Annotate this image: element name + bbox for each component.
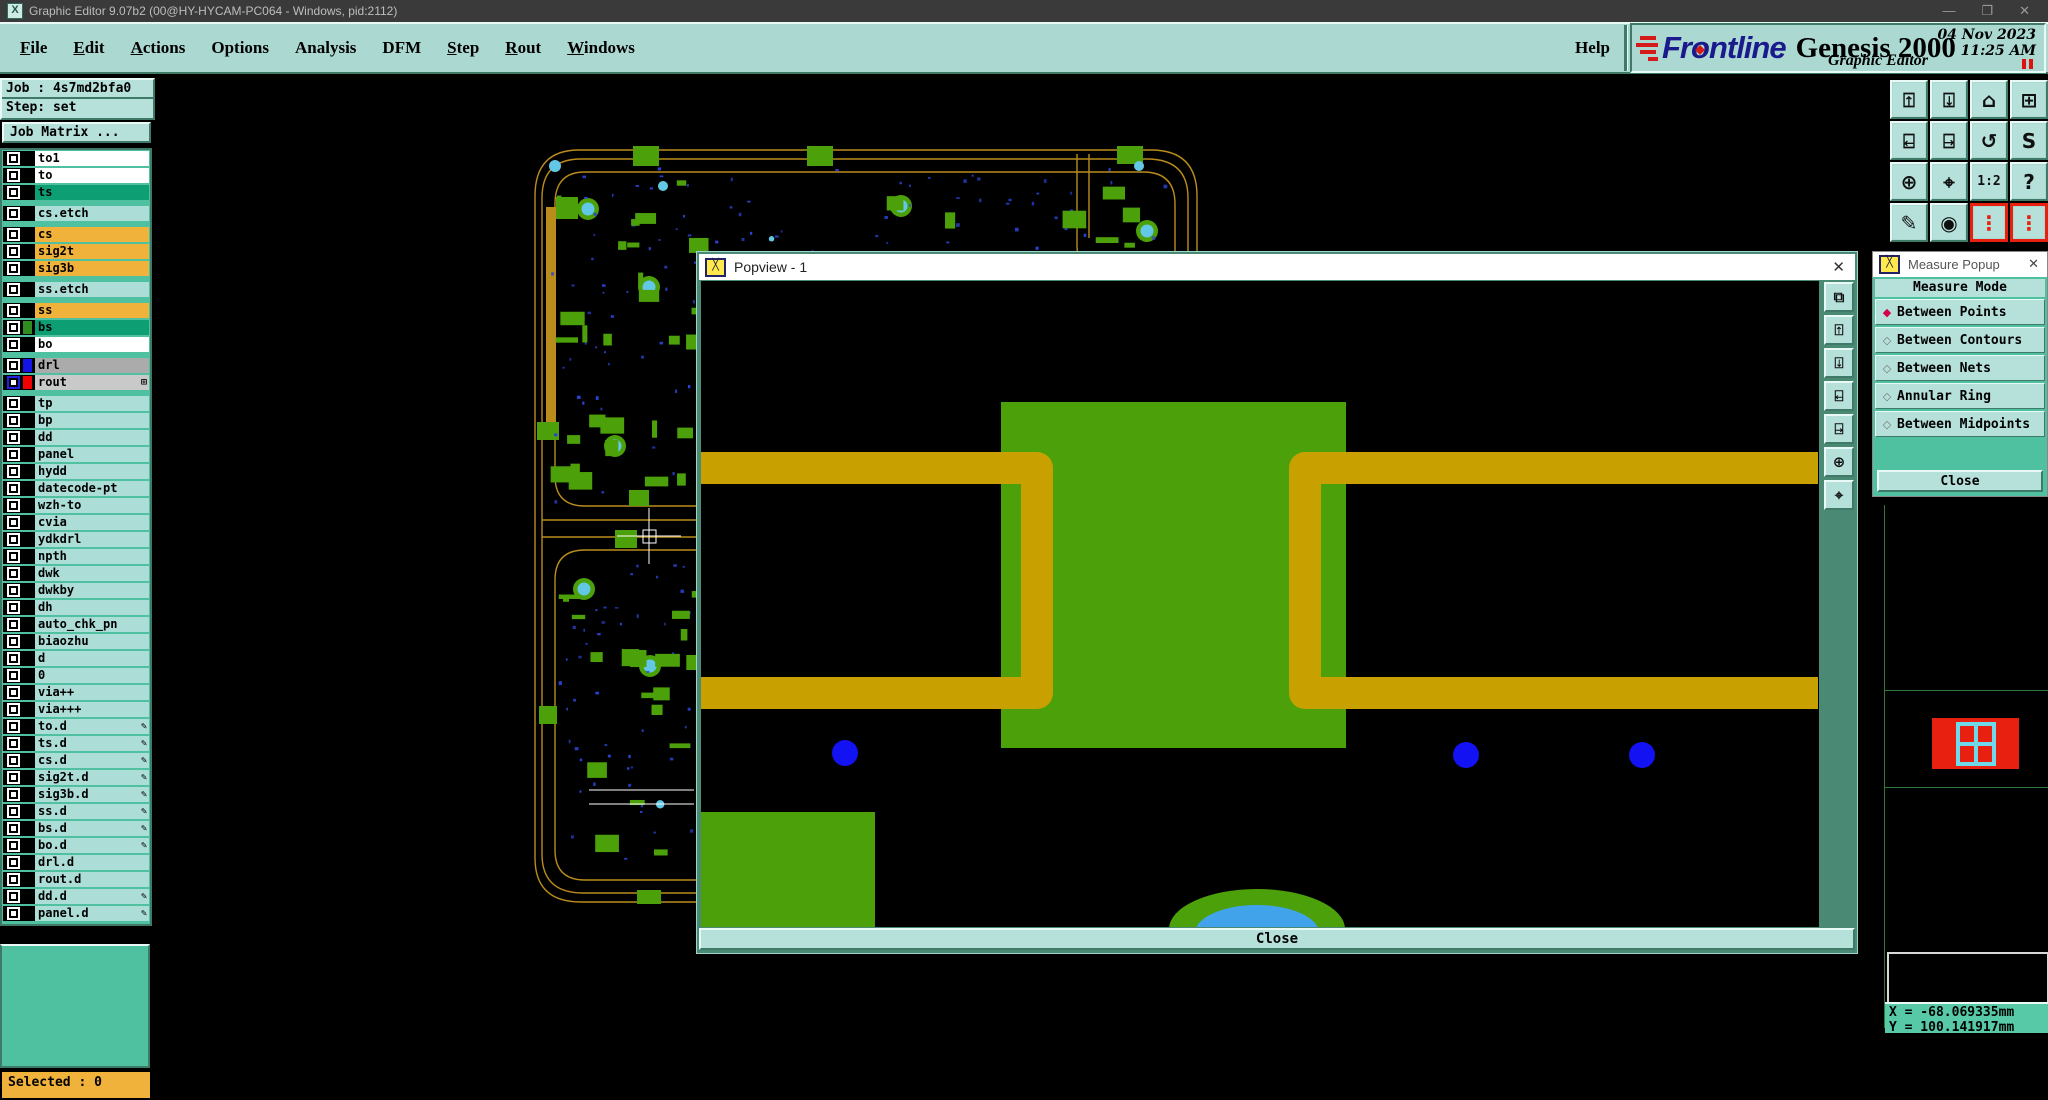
layer-color-swatch	[23, 805, 32, 818]
logo-speedline	[1636, 43, 1658, 47]
menu-dfm[interactable]: DFM	[382, 38, 421, 58]
measure-option-between-points[interactable]: ◆Between Points	[1875, 299, 2045, 325]
popview-graphic	[701, 281, 1819, 927]
layer-row-to1[interactable]: to1	[3, 151, 149, 166]
layer-row-drl[interactable]: drl	[3, 358, 149, 373]
layer-checkbox[interactable]	[7, 283, 20, 296]
layer-name[interactable]: drl	[35, 358, 149, 373]
d-layer-pen-icon: ✎	[141, 719, 147, 734]
layer-row-dwkby[interactable]: dwkby	[3, 583, 149, 598]
d-layer-pen-icon: ✎	[141, 787, 147, 802]
layer-name[interactable]: panel	[35, 447, 149, 462]
layer-name-text: cs.etch	[38, 206, 147, 221]
layer-name[interactable]: via+++	[35, 702, 149, 717]
layer-name[interactable]: dh	[35, 600, 149, 615]
query-button[interactable]: ?	[2010, 162, 2048, 201]
menu-options[interactable]: Options	[211, 38, 269, 58]
layer-name-text: rout	[38, 375, 141, 390]
layer-color-swatch	[23, 788, 32, 801]
layer-checkbox[interactable]	[7, 245, 20, 258]
measure-options: ◆Between Points◇Between Contours◇Between…	[1873, 299, 2047, 437]
measure-option-annular-ring[interactable]: ◇Annular Ring	[1875, 383, 2045, 409]
layer-name[interactable]: ts	[35, 185, 149, 200]
brand-plate: Frontline Genesis 2000 Graphic Editor 04…	[1630, 23, 2046, 73]
d-layer-pen-icon: ✎	[141, 821, 147, 836]
measure-option-between-nets[interactable]: ◇Between Nets	[1875, 355, 2045, 381]
layer-color-swatch	[23, 448, 32, 461]
window-xy-button[interactable]: ⊞	[2010, 80, 2048, 119]
layer-name[interactable]: datecode-pt	[35, 481, 149, 496]
popview-pan-right-button[interactable]: ⍈	[1824, 414, 1854, 444]
menubar: FileEditActionsOptionsAnalysisDFMStepRou…	[0, 22, 2048, 74]
layer-color-swatch	[23, 482, 32, 495]
layer-name-text: ss.etch	[38, 282, 147, 297]
d-layer-pen-icon: ✎	[141, 889, 147, 904]
layer-name[interactable]: ss.etch	[35, 282, 149, 297]
layer-name[interactable]: to.d✎	[35, 719, 149, 734]
layer-checkbox[interactable]	[7, 720, 20, 733]
layer-checkbox[interactable]	[7, 397, 20, 410]
layer-color-swatch	[23, 686, 32, 699]
layer-name-text: auto_chk_pn	[38, 617, 147, 632]
layer-checkbox[interactable]	[7, 431, 20, 444]
layer-name-text: ts	[38, 185, 147, 200]
layer-color-swatch	[23, 720, 32, 733]
layer-checkbox[interactable]	[7, 686, 20, 699]
popview-window-icon	[705, 258, 726, 277]
menu-step[interactable]: Step	[447, 38, 479, 58]
layer-name[interactable]: wzh-to	[35, 498, 149, 513]
job-name: Job : 4s7md2bfa0	[2, 80, 153, 99]
layer-name-text: dd.d	[38, 889, 141, 904]
layer-row-cs.etch[interactable]: cs.etch	[3, 206, 149, 221]
layer-name[interactable]: auto_chk_pn	[35, 617, 149, 632]
layer-checkbox[interactable]	[7, 448, 20, 461]
layer-name-text: ss.d	[38, 804, 141, 819]
layer-name-text: rout.d	[38, 872, 147, 887]
layer-name[interactable]: ss	[35, 303, 149, 318]
layer-name[interactable]: bs.d✎	[35, 821, 149, 836]
popview-clone-button[interactable]: ⧉	[1824, 282, 1854, 312]
layer-row-dd[interactable]: dd	[3, 430, 149, 445]
layer-name[interactable]: cs.d✎	[35, 753, 149, 768]
layer-row-cvia[interactable]: cvia	[3, 515, 149, 530]
thumbnail-grid-icon	[1956, 722, 1996, 766]
layer-color-swatch	[23, 338, 32, 351]
layer-color-swatch	[23, 754, 32, 767]
view-up-button[interactable]: ⍐	[1890, 80, 1928, 119]
layer-name[interactable]: bp	[35, 413, 149, 428]
layer-color-swatch	[23, 304, 32, 317]
layer-checkbox[interactable]	[7, 788, 20, 801]
layer-name[interactable]: via++	[35, 685, 149, 700]
layer-name-text: bo	[38, 337, 147, 352]
layer-name[interactable]: to1	[35, 151, 149, 166]
layer-checkbox[interactable]	[7, 533, 20, 546]
layer-name-text: sig3b	[38, 261, 147, 276]
selected-count: Selected : 0	[0, 1070, 152, 1100]
layer-row-dd.d[interactable]: dd.d✎	[3, 889, 149, 904]
layer-row-wzh-to[interactable]: wzh-to	[3, 498, 149, 513]
product-subtitle: Graphic Editor	[1828, 52, 1928, 70]
menu-edit[interactable]: Edit	[73, 38, 104, 58]
layer-row-via++[interactable]: via++	[3, 685, 149, 700]
step-name: Step: set	[2, 99, 153, 118]
layer-name-text: drl	[38, 358, 147, 373]
layer-name[interactable]: sig2t.d✎	[35, 770, 149, 785]
layer-checkbox[interactable]	[7, 771, 20, 784]
window-title: Graphic Editor 9.07b2 (00@HY-HYCAM-PC064…	[29, 4, 397, 18]
menu-actions[interactable]: Actions	[131, 38, 186, 58]
layer-row-ydkdrl[interactable]: ydkdrl	[3, 532, 149, 547]
layer-color-swatch	[23, 376, 32, 389]
layer-name-text: cs	[38, 227, 147, 242]
layer-name[interactable]: cvia	[35, 515, 149, 530]
layer-row-tp[interactable]: tp	[3, 396, 149, 411]
layer-row-ts.d[interactable]: ts.d✎	[3, 736, 149, 751]
layer-checkbox[interactable]	[7, 737, 20, 750]
layer-color-swatch	[23, 737, 32, 750]
drill-dot	[1629, 742, 1655, 768]
layer-checkbox[interactable]	[7, 890, 20, 903]
layer-row-bo.d[interactable]: bo.d✎	[3, 838, 149, 853]
layer-row-panel.d[interactable]: panel.d✎	[3, 906, 149, 921]
layer-name-text: biaozhu	[38, 634, 147, 649]
layer-checkbox[interactable]	[7, 822, 20, 835]
layer-row-dh[interactable]: dh	[3, 600, 149, 615]
layer-name[interactable]: rout⊞	[35, 375, 149, 390]
layer-name[interactable]: dwk	[35, 566, 149, 581]
snap-origin-button[interactable]: ◉	[1930, 203, 1968, 242]
layer-name[interactable]: drl.d	[35, 855, 149, 870]
layer-name-text: sig2t	[38, 244, 147, 259]
popview-close-button[interactable]: Close	[699, 928, 1855, 950]
layer-name[interactable]: tp	[35, 396, 149, 411]
layer-color-swatch	[23, 890, 32, 903]
measure-title: Measure Popup	[1908, 257, 2000, 272]
measure-option-label: Between Contours	[1897, 333, 2022, 348]
layer-row-bp[interactable]: bp	[3, 413, 149, 428]
layer-name[interactable]: cs.etch	[35, 206, 149, 221]
popview-zoom-in-button[interactable]: ⍐	[1824, 315, 1854, 345]
layer-color-swatch	[23, 321, 32, 334]
status-box	[1887, 952, 2048, 1002]
layer-name[interactable]: sig3b	[35, 261, 149, 276]
layer-checkbox[interactable]	[7, 907, 20, 920]
layer-sidebar: Job : 4s7md2bfa0 Step: set Job Matrix ..…	[0, 74, 155, 1028]
layer-checkbox[interactable]	[7, 262, 20, 275]
layer-color-swatch	[23, 635, 32, 648]
close-icon[interactable]: ✕	[2019, 3, 2030, 19]
layer-color-swatch	[23, 601, 32, 614]
net-highlight-a-button[interactable]: ⋮	[1970, 203, 2008, 242]
measure-close-button[interactable]: Close	[1877, 470, 2043, 492]
view-toolbar: ⍐⍗⌂⊞⍇⍈↺S⊕⌖1:2?✎◉⋮⋮	[1890, 80, 2048, 242]
layer-name-text: panel	[38, 447, 147, 462]
radio-icon: ◇	[1880, 390, 1894, 403]
popview-viewport[interactable]	[701, 281, 1819, 927]
layer-name[interactable]: d	[35, 651, 149, 666]
layer-checkbox[interactable]	[7, 669, 20, 682]
layer-name-text: dwk	[38, 566, 147, 581]
d-layer-pen-icon: ✎	[141, 753, 147, 768]
datetime: 04 Nov 202311:25 AM	[1938, 27, 2036, 59]
layer-checkbox[interactable]	[7, 839, 20, 852]
layer-row-rout.d[interactable]: rout.d	[3, 872, 149, 887]
zoom-1-2-button[interactable]: 1:2	[1970, 162, 2008, 201]
layer-color-swatch	[23, 499, 32, 512]
layer-name[interactable]: rout.d	[35, 872, 149, 887]
window-titlebar: X Graphic Editor 9.07b2 (00@HY-HYCAM-PC0…	[0, 0, 2048, 22]
layer-name-text: dh	[38, 600, 147, 615]
layer-name-text: wzh-to	[38, 498, 147, 513]
layer-grid-icon: ⊞	[141, 375, 147, 390]
popview-close-icon[interactable]: ✕	[1832, 258, 1845, 276]
layer-name-text: tp	[38, 396, 147, 411]
layer-color-swatch	[23, 822, 32, 835]
layer-checkbox[interactable]	[7, 321, 20, 334]
layer-name-text: panel.d	[38, 906, 141, 921]
zoom-center-button[interactable]: ⌖	[1930, 162, 1968, 201]
layer-checkbox[interactable]	[7, 152, 20, 165]
popview-center-button[interactable]: ⌖	[1824, 480, 1854, 510]
overview-thumbnail[interactable]	[1932, 718, 2019, 769]
drill-dot	[1453, 742, 1479, 768]
panel-divider	[1885, 690, 2048, 691]
measure-mode-header: Measure Mode	[1875, 279, 2045, 297]
view-left-button[interactable]: ⍇	[1890, 121, 1928, 160]
layer-name-text: ts.d	[38, 736, 141, 751]
layer-row-via+++[interactable]: via+++	[3, 702, 149, 717]
d-layer-pen-icon: ✎	[141, 838, 147, 853]
layer-checkbox[interactable]	[7, 584, 20, 597]
layer-checkbox[interactable]	[7, 550, 20, 563]
layer-color-swatch	[23, 186, 32, 199]
layer-checkbox[interactable]	[7, 207, 20, 220]
measure-option-label: Between Nets	[1897, 361, 1991, 376]
layer-color-swatch	[23, 207, 32, 220]
layer-name[interactable]: sig2t	[35, 244, 149, 259]
layer-color-swatch	[23, 567, 32, 580]
measure-close-icon[interactable]: ✕	[2028, 257, 2039, 272]
layer-name[interactable]: bo.d✎	[35, 838, 149, 853]
layer-row-d[interactable]: d	[3, 651, 149, 666]
view-down-button[interactable]: ⍗	[1930, 80, 1968, 119]
layer-name[interactable]: cs	[35, 227, 149, 242]
layer-color-swatch	[23, 873, 32, 886]
net-highlight-b-button[interactable]: ⋮	[2010, 203, 2048, 242]
layer-name-text: cs.d	[38, 753, 141, 768]
popview-toolbar: ⧉⍐⍗⍇⍈⊕⌖	[1824, 282, 1854, 510]
previous-view-button[interactable]: ↺	[1970, 121, 2008, 160]
layer-name-text: via+++	[38, 702, 147, 717]
layer-row-ss[interactable]: ss	[3, 303, 149, 318]
measure-option-between-midpoints[interactable]: ◇Between Midpoints	[1875, 411, 2045, 437]
layer-checkbox[interactable]	[7, 652, 20, 665]
layer-color-swatch	[23, 414, 32, 427]
layer-checkbox[interactable]	[7, 338, 20, 351]
frontline-logo: Frontline	[1662, 30, 1786, 66]
layer-name[interactable]: dd	[35, 430, 149, 445]
layer-name-text: to	[38, 168, 147, 183]
measure-option-between-contours[interactable]: ◇Between Contours	[1875, 327, 2045, 353]
trace-right-loop	[1305, 468, 1818, 693]
layer-row-auto_chk_pn[interactable]: auto_chk_pn	[3, 617, 149, 632]
layer-color-swatch	[23, 533, 32, 546]
layer-name-text: to1	[38, 151, 147, 166]
d-layer-pen-icon: ✎	[141, 804, 147, 819]
layer-name[interactable]: sig3b.d✎	[35, 787, 149, 802]
layer-name-text: bo.d	[38, 838, 141, 853]
layer-name-text: datecode-pt	[38, 481, 147, 496]
layer-checkbox[interactable]	[7, 465, 20, 478]
pad-square	[701, 812, 875, 927]
popview-titlebar[interactable]: Popview - 1 ✕	[699, 254, 1855, 280]
radio-icon: ◇	[1880, 418, 1894, 431]
layer-color-swatch	[23, 397, 32, 410]
layer-row-cs[interactable]: cs	[3, 227, 149, 242]
layer-checkbox[interactable]	[7, 499, 20, 512]
radio-selected-icon: ◆	[1880, 306, 1894, 319]
layer-checkbox[interactable]	[7, 482, 20, 495]
minimize-icon[interactable]: —	[1942, 3, 1955, 19]
layer-checkbox[interactable]	[7, 304, 20, 317]
measure-titlebar[interactable]: Measure Popup ✕	[1873, 252, 2047, 277]
menu-help[interactable]: Help	[1575, 38, 1624, 58]
layer-name[interactable]: dwkby	[35, 583, 149, 598]
layer-checkbox[interactable]	[7, 228, 20, 241]
layer-checkbox[interactable]	[7, 873, 20, 886]
layer-color-swatch	[23, 283, 32, 296]
layer-checkbox[interactable]	[7, 376, 20, 389]
layer-name[interactable]: hydd	[35, 464, 149, 479]
layer-name[interactable]: panel.d✎	[35, 906, 149, 921]
menu-analysis[interactable]: Analysis	[295, 38, 356, 58]
layer-name-text: d	[38, 651, 147, 666]
layer-row-sig3b[interactable]: sig3b	[3, 261, 149, 276]
layer-row-hydd[interactable]: hydd	[3, 464, 149, 479]
layer-checkbox[interactable]	[7, 618, 20, 631]
layer-name-text: ydkdrl	[38, 532, 147, 547]
job-matrix-button[interactable]: Job Matrix ...	[2, 122, 151, 143]
layer-name[interactable]: 0	[35, 668, 149, 683]
layer-checkbox[interactable]	[7, 414, 20, 427]
redraw-s-button[interactable]: S	[2010, 121, 2048, 160]
layer-row-panel[interactable]: panel	[3, 447, 149, 462]
popview-pan-left-button[interactable]: ⍇	[1824, 381, 1854, 411]
layer-color-swatch	[23, 431, 32, 444]
view-right-button[interactable]: ⍈	[1930, 121, 1968, 160]
d-layer-pen-icon: ✎	[141, 770, 147, 785]
home-view-button[interactable]: ⌂	[1970, 80, 2008, 119]
layer-name[interactable]: to	[35, 168, 149, 183]
menu-file[interactable]: File	[20, 38, 47, 58]
logo-speedline	[1640, 50, 1656, 54]
measure-option-label: Annular Ring	[1897, 389, 1991, 404]
layer-checkbox[interactable]	[7, 703, 20, 716]
layer-row-to[interactable]: to	[3, 168, 149, 183]
layer-row-drl.d[interactable]: drl.d	[3, 855, 149, 870]
menu-divider	[1624, 25, 1628, 71]
layer-row-sig2t[interactable]: sig2t	[3, 244, 149, 259]
edit-tools-button[interactable]: ✎	[1890, 203, 1928, 242]
layer-checkbox[interactable]	[7, 805, 20, 818]
layer-color-swatch	[23, 584, 32, 597]
coord-x: X = -68.069335mm	[1889, 1005, 2014, 1020]
layer-row-0[interactable]: 0	[3, 668, 149, 683]
layer-row-ss.d[interactable]: ss.d✎	[3, 804, 149, 819]
layer-checkbox[interactable]	[7, 567, 20, 580]
layer-row-dwk[interactable]: dwk	[3, 566, 149, 581]
layer-checkbox[interactable]	[7, 754, 20, 767]
layer-color-swatch	[23, 152, 32, 165]
layer-row-to.d[interactable]: to.d✎	[3, 719, 149, 734]
layer-row-bs[interactable]: bs	[3, 320, 149, 335]
layer-color-swatch	[23, 856, 32, 869]
layer-color-swatch	[23, 652, 32, 665]
layer-row-bo[interactable]: bo	[3, 337, 149, 352]
layer-color-swatch	[23, 228, 32, 241]
menu-rout[interactable]: Rout	[505, 38, 541, 58]
layer-row-rout[interactable]: rout⊞	[3, 375, 149, 390]
layer-color-swatch	[23, 618, 32, 631]
layer-name[interactable]: biaozhu	[35, 634, 149, 649]
layer-row-ts[interactable]: ts	[3, 185, 149, 200]
layer-color-swatch	[23, 703, 32, 716]
drill-dot	[832, 740, 858, 766]
logo-speedline	[1640, 36, 1656, 40]
layer-row-npth[interactable]: npth	[3, 549, 149, 564]
menu-items: FileEditActionsOptionsAnalysisDFMStepRou…	[0, 38, 635, 58]
layer-row-bs.d[interactable]: bs.d✎	[3, 821, 149, 836]
pause-icon	[2022, 59, 2034, 69]
layer-name-text: drl.d	[38, 855, 147, 870]
menu-windows[interactable]: Windows	[567, 38, 635, 58]
layer-row-cs.d[interactable]: cs.d✎	[3, 753, 149, 768]
layer-color-swatch	[23, 550, 32, 563]
layer-checkbox[interactable]	[7, 186, 20, 199]
layer-list: to1totscs.etchcssig2tsig3bss.etchssbsbod…	[0, 148, 152, 926]
layer-name[interactable]: bs	[35, 320, 149, 335]
layer-row-sig2t.d[interactable]: sig2t.d✎	[3, 770, 149, 785]
layer-name-text: bp	[38, 413, 147, 428]
layer-color-swatch	[23, 262, 32, 275]
layer-checkbox[interactable]	[7, 169, 20, 182]
layer-row-datecode-pt[interactable]: datecode-pt	[3, 481, 149, 496]
layer-checkbox[interactable]	[7, 516, 20, 529]
popview-zoom-out-button[interactable]: ⍗	[1824, 348, 1854, 378]
sidebar-filler	[0, 944, 150, 1068]
layer-color-swatch	[23, 245, 32, 258]
cursor-coordinates: X = -68.069335mm Y = 100.141917mm	[1885, 1002, 2048, 1033]
layer-row-biaozhu[interactable]: biaozhu	[3, 634, 149, 649]
layer-row-ss.etch[interactable]: ss.etch	[3, 282, 149, 297]
layer-checkbox[interactable]	[7, 601, 20, 614]
layer-name[interactable]: ss.d✎	[35, 804, 149, 819]
layer-name[interactable]: ts.d✎	[35, 736, 149, 751]
maximize-icon[interactable]: ❐	[1981, 3, 1993, 19]
layer-name[interactable]: ydkdrl	[35, 532, 149, 547]
layer-row-sig3b.d[interactable]: sig3b.d✎	[3, 787, 149, 802]
layer-name[interactable]: npth	[35, 549, 149, 564]
layer-checkbox[interactable]	[7, 856, 20, 869]
popview-fit-button[interactable]: ⊕	[1824, 447, 1854, 477]
zoom-fit-button[interactable]: ⊕	[1890, 162, 1928, 201]
layer-name[interactable]: dd.d✎	[35, 889, 149, 904]
layer-checkbox[interactable]	[7, 635, 20, 648]
layer-name[interactable]: bo	[35, 337, 149, 352]
layer-checkbox[interactable]	[7, 359, 20, 372]
